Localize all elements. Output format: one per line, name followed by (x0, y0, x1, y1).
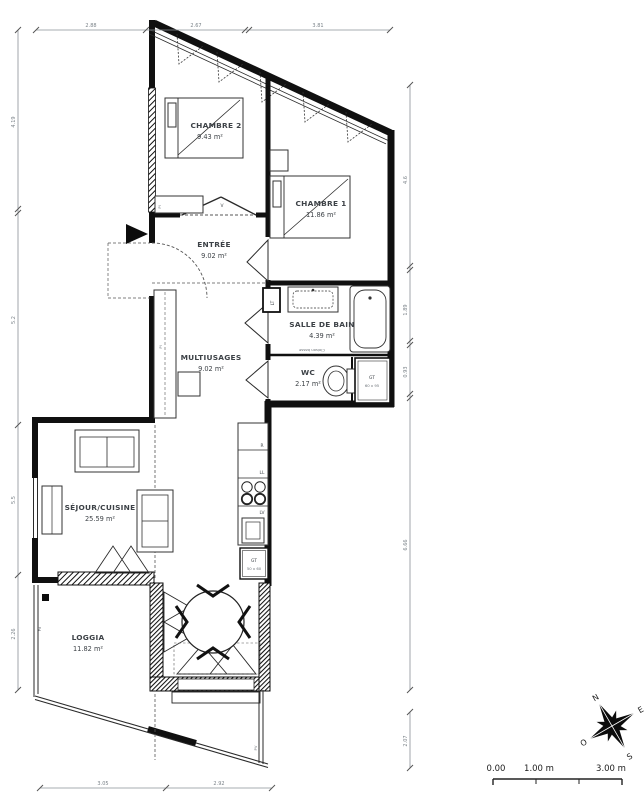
sofa-icon (75, 430, 139, 472)
dim-top-1: 2.67 (190, 23, 201, 29)
dim-bottom-0: 3.05 (97, 781, 108, 787)
duct-lt-label: LT (270, 300, 276, 305)
dimension-right: 4.6 1.89 0.93 6.66 2.07 (403, 82, 413, 771)
room-label-multiusages: MULTIUSAGES (181, 353, 242, 362)
room-label-wc: WC (301, 368, 315, 377)
dim-top-0: 2.88 (85, 23, 96, 29)
bathtub-icon (350, 286, 390, 352)
doors (108, 197, 268, 398)
box-window-bottom (178, 679, 254, 690)
box-wall-right (259, 583, 270, 691)
desk-multiusages-icon (178, 372, 200, 396)
scale-end: 3.00 m (596, 764, 626, 774)
room-area-wc: 2.17 m² (295, 380, 321, 388)
cabinet-icon (42, 486, 62, 534)
dim-left-2: 5.5 (11, 496, 17, 504)
entrance-landing (108, 243, 150, 298)
window-pv-label: PV (253, 745, 258, 750)
dim-left-3: 2.26 (11, 628, 17, 639)
room-area-chambre2: 9.43 m² (197, 133, 223, 141)
dining-table-icon (176, 585, 250, 659)
room-label-loggia: LOGGIA (72, 633, 105, 642)
window-band-chambre2 (149, 88, 156, 212)
dimension-left: 4.19 5.2 5.5 2.26 (11, 27, 21, 693)
dim-right-4: 2.07 (403, 735, 409, 746)
room-area-sejour: 25.59 m² (85, 515, 115, 523)
room-area-loggia: 11.82 m² (73, 645, 103, 653)
room-area-multiusages: 9.02 m² (198, 365, 224, 373)
box-wall-left (150, 583, 163, 690)
dim-right-1: 1.89 (403, 304, 409, 315)
entrance-arrow-icon (126, 224, 148, 244)
fridge-label: R (260, 443, 263, 449)
dimension-top: 2.88 2.67 3.81 (33, 23, 393, 33)
duct-lt-box (263, 288, 280, 312)
kitchen-counter-icon (238, 423, 268, 545)
folding-door-v-label: V (220, 203, 223, 209)
dim-left-1: 5.2 (11, 316, 17, 324)
door-wc (246, 361, 268, 398)
compass-o: O (579, 737, 589, 748)
room-label-chambre2: CHAMBRE 2 (190, 121, 241, 130)
dim-top-2: 3.81 (312, 23, 323, 29)
washer-label: LL (260, 470, 265, 476)
dishwasher-label: LV (260, 510, 265, 516)
door-pd-label: Pd (37, 626, 42, 631)
closet-pl-label-1: Pl (157, 205, 162, 208)
corner-post (42, 594, 49, 601)
compass-e: E (636, 705, 644, 715)
partition-note: Cloison basse (298, 348, 325, 353)
room-area-entree: 9.02 m² (201, 252, 227, 260)
room-label-sdb: SALLE DE BAIN (289, 320, 354, 329)
dim-right-3: 6.66 (403, 539, 409, 550)
compass-n: N (591, 692, 601, 703)
room-label-chambre1: CHAMBRE 1 (295, 199, 346, 208)
window-band-sejour (58, 572, 154, 585)
bed-chambre1-icon (270, 150, 350, 238)
dimension-bottom: 3.05 2.92 (37, 781, 275, 791)
dim-bottom-1: 2.92 (213, 781, 224, 787)
loggia-left-rail (34, 585, 38, 697)
scale-bar: 0.00 1.00 m 3.00 m (487, 764, 626, 785)
gt-kitchen-size: 50 x 60 (247, 566, 262, 571)
room-label-entree: ENTRÉE (197, 240, 231, 249)
gt-wc-size: 60 x 95 (365, 383, 380, 388)
floor-plan-drawing: CHAMBRE 2 9.43 m² CHAMBRE 1 11.86 m² ENT… (0, 0, 644, 800)
scale-mid: 1.00 m (524, 764, 554, 774)
gt-kitchen-label: GT (251, 558, 257, 564)
floor-plan-page: CHAMBRE 2 9.43 m² CHAMBRE 1 11.86 m² ENT… (0, 0, 644, 800)
dim-right-2: 0.93 (403, 366, 409, 377)
dim-right-0: 4.6 (403, 176, 409, 184)
room-label-sejour: SÉJOUR/CUISINE (65, 503, 136, 512)
washbasin-icon (288, 287, 338, 312)
compass-s: S (625, 752, 634, 762)
closet-pl-label-2: Pl (158, 345, 163, 348)
window-sill (172, 692, 260, 703)
room-area-chambre1: 11.86 m² (306, 211, 336, 219)
closet-chambre2-icon (155, 196, 203, 213)
room-area-sdb: 4.39 m² (309, 332, 335, 340)
dim-left-0: 4.19 (11, 116, 17, 127)
door-chambre1 (247, 240, 268, 281)
window-sejour-left (34, 478, 38, 538)
armchair-icon (137, 490, 173, 552)
gt-wc-label: GT (369, 375, 375, 381)
scale-start: 0.00 (487, 764, 506, 774)
